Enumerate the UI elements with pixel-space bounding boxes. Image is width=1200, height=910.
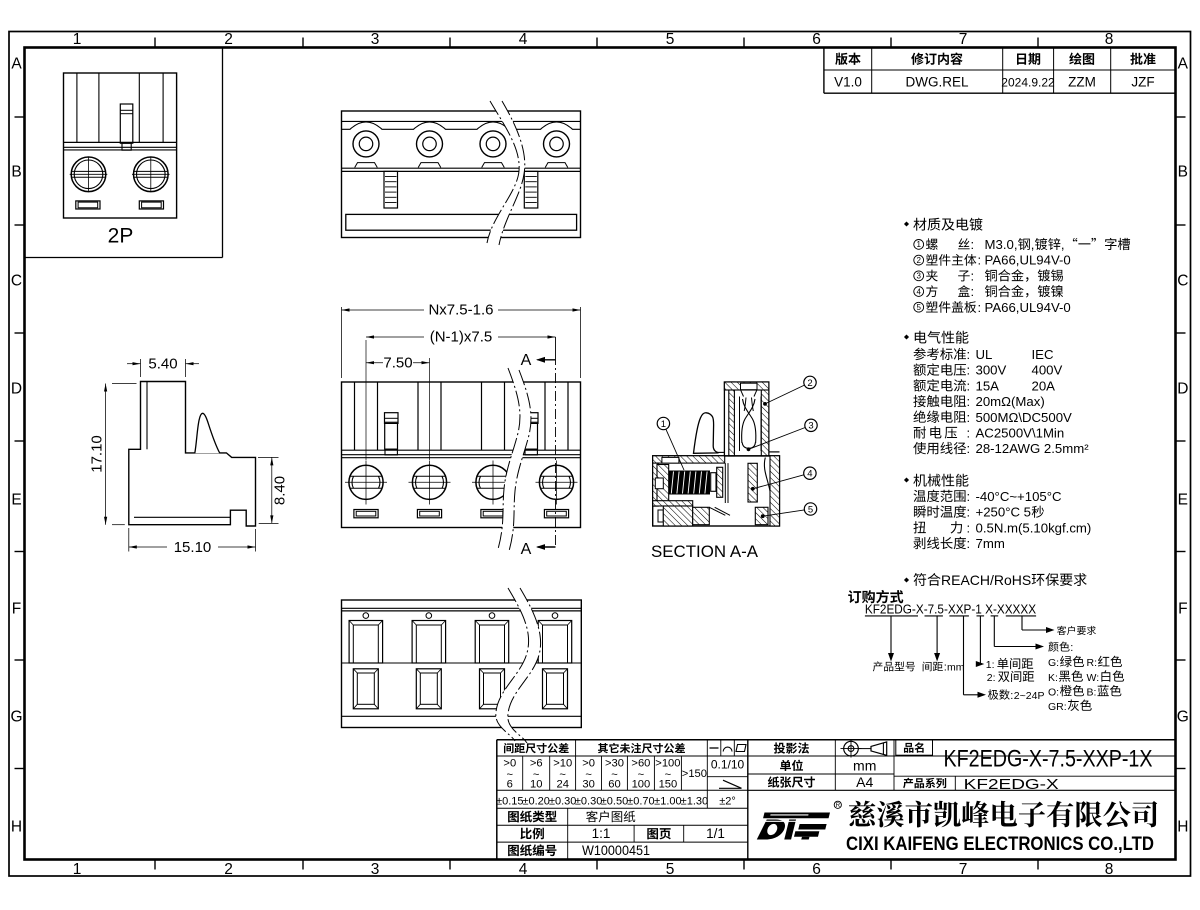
svg-text:2~24P: 2~24P	[1014, 690, 1045, 702]
svg-text:>0: >0	[503, 757, 516, 769]
svg-text:+250°C 5: +250°C 5	[976, 505, 1032, 520]
svg-text::: :	[967, 410, 971, 425]
svg-text:60: 60	[608, 779, 620, 791]
svg-text:5: 5	[808, 504, 813, 515]
svg-text:7: 7	[959, 861, 968, 878]
svg-text:>60: >60	[631, 757, 650, 769]
svg-text:C: C	[11, 273, 22, 290]
svg-text:W:: W:	[1087, 672, 1100, 684]
svg-text:7mm: 7mm	[976, 536, 1005, 551]
svg-text:0.5N.m(5.10kgf.cm): 0.5N.m(5.10kgf.cm)	[976, 520, 1092, 535]
svg-text:0.1/10: 0.1/10	[711, 757, 745, 771]
svg-text:B: B	[11, 164, 21, 181]
svg-text:±0.70: ±0.70	[627, 795, 654, 807]
svg-text:Nx7.5-1.6: Nx7.5-1.6	[428, 302, 493, 319]
svg-text:3: 3	[371, 861, 380, 878]
svg-text:>6: >6	[530, 757, 543, 769]
svg-text:4: 4	[916, 287, 921, 296]
svg-text:mm: mm	[853, 757, 876, 773]
svg-text:8: 8	[1105, 31, 1114, 48]
svg-text:CIXI KAIFENG ELECTRONICS CO.,L: CIXI KAIFENG ELECTRONICS CO.,LTD	[846, 833, 1154, 855]
svg-text:1:1: 1:1	[592, 826, 611, 841]
svg-text:1:: 1:	[986, 659, 995, 671]
svg-text:>30: >30	[605, 757, 624, 769]
svg-text::: :	[967, 536, 971, 551]
svg-text:2: 2	[224, 31, 233, 48]
svg-text:M3.0,: M3.0,	[985, 237, 1018, 252]
svg-text:8: 8	[1105, 861, 1114, 878]
svg-text:5: 5	[666, 31, 675, 48]
svg-text:UL: UL	[976, 347, 993, 362]
svg-text:30: 30	[582, 779, 594, 791]
svg-text:100: 100	[632, 779, 651, 791]
svg-text::: :	[967, 363, 971, 378]
svg-text:E: E	[1178, 492, 1188, 509]
svg-text:F: F	[1178, 601, 1187, 618]
svg-text:mm: mm	[947, 662, 965, 674]
svg-text:2: 2	[224, 861, 233, 878]
svg-text:PA66,UL94V-0: PA66,UL94V-0	[985, 300, 1071, 315]
svg-text:KF2EDG-X-7.5-XXP-1X: KF2EDG-X-7.5-XXP-1X	[944, 745, 1153, 772]
svg-text:6: 6	[812, 31, 821, 48]
svg-text:REACH/RoHS: REACH/RoHS	[941, 572, 1031, 588]
svg-text:±0.30: ±0.30	[549, 795, 576, 807]
svg-text:±0.15: ±0.15	[496, 795, 523, 807]
svg-text:A: A	[521, 541, 532, 558]
svg-text:±1.30: ±1.30	[681, 795, 708, 807]
svg-text:8.40: 8.40	[272, 476, 289, 505]
svg-text:20mΩ(Max): 20mΩ(Max)	[976, 394, 1045, 409]
svg-text:,: ,	[1061, 237, 1065, 252]
svg-text:JZF: JZF	[1131, 74, 1154, 89]
svg-text:28-12AWG 2.5mm²: 28-12AWG 2.5mm²	[976, 441, 1090, 456]
svg-text:>0: >0	[582, 757, 595, 769]
svg-text:300V: 300V	[976, 363, 1007, 378]
svg-text:6: 6	[507, 779, 513, 791]
svg-text:10: 10	[530, 779, 542, 791]
svg-text:H: H	[11, 819, 22, 836]
svg-text:K:: K:	[1048, 672, 1058, 684]
svg-text:,: ,	[1031, 237, 1035, 252]
svg-text:DWG.REL: DWG.REL	[905, 74, 968, 89]
svg-text:17.10: 17.10	[89, 435, 106, 473]
svg-text:A: A	[1178, 56, 1189, 73]
svg-text:>10: >10	[553, 757, 572, 769]
svg-text:W10000451: W10000451	[582, 842, 650, 858]
svg-text:-40°C~+105°C: -40°C~+105°C	[976, 489, 1063, 504]
svg-text:IEC: IEC	[1032, 347, 1054, 362]
svg-text:G:: G:	[1048, 657, 1059, 669]
svg-text:±0.20: ±0.20	[522, 795, 549, 807]
svg-text:AC2500V\1Min: AC2500V\1Min	[976, 426, 1065, 441]
svg-text::: :	[1070, 642, 1073, 654]
svg-text::: :	[978, 253, 982, 268]
svg-text::: :	[978, 300, 982, 315]
svg-text:KF2EDG-X: KF2EDG-X	[964, 777, 1059, 793]
svg-text::: :	[967, 505, 971, 520]
svg-text:±0.30: ±0.30	[575, 795, 602, 807]
svg-text:R:: R:	[1087, 657, 1098, 669]
svg-text:±2°: ±2°	[719, 795, 736, 807]
svg-text::: :	[967, 378, 971, 393]
svg-text:5: 5	[666, 861, 675, 878]
svg-text:1: 1	[73, 861, 82, 878]
svg-text:15.10: 15.10	[174, 539, 212, 556]
svg-text:24: 24	[556, 779, 568, 791]
svg-text:20A: 20A	[1032, 378, 1056, 393]
svg-text:GR:: GR:	[1048, 701, 1067, 713]
svg-text:G: G	[10, 709, 22, 726]
svg-text:1/1: 1/1	[706, 826, 725, 841]
svg-text::: :	[967, 441, 971, 456]
svg-text:>150: >150	[682, 768, 707, 780]
svg-text:ZZM: ZZM	[1068, 74, 1096, 89]
svg-text:7.50: 7.50	[383, 354, 412, 371]
svg-text::: :	[971, 284, 975, 299]
svg-text::: :	[967, 426, 971, 441]
svg-text:D: D	[1177, 381, 1188, 398]
svg-text:3: 3	[808, 421, 813, 432]
svg-text:1: 1	[73, 31, 82, 48]
svg-text:2: 2	[807, 378, 812, 389]
svg-text:E: E	[11, 492, 21, 509]
svg-text:3: 3	[371, 31, 380, 48]
svg-text:4: 4	[519, 861, 528, 878]
svg-text:B: B	[1178, 164, 1188, 181]
svg-text:>100: >100	[655, 757, 680, 769]
svg-text::: :	[967, 489, 971, 504]
svg-text:4: 4	[807, 469, 812, 480]
svg-text::: :	[967, 394, 971, 409]
svg-text:G: G	[1177, 709, 1189, 726]
svg-text::: :	[967, 347, 971, 362]
svg-text:KF2EDG-X-7.5-XXP-1 X-XXXXX: KF2EDG-X-7.5-XXP-1 X-XXXXX	[865, 602, 1037, 616]
svg-text:2: 2	[916, 256, 921, 265]
svg-text:R: R	[836, 802, 841, 809]
svg-text:2P: 2P	[108, 225, 134, 248]
svg-text:±1.00: ±1.00	[654, 795, 681, 807]
svg-text::: :	[971, 237, 975, 252]
svg-text:V1.0: V1.0	[834, 74, 862, 89]
svg-text:5.40: 5.40	[148, 356, 177, 373]
svg-text:D: D	[11, 381, 22, 398]
svg-text:1: 1	[661, 419, 666, 430]
svg-text:PA66,UL94V-0: PA66,UL94V-0	[985, 253, 1071, 268]
svg-text:A4: A4	[856, 774, 873, 790]
svg-text:15A: 15A	[976, 378, 1000, 393]
svg-text:150: 150	[659, 779, 678, 791]
svg-text:5: 5	[916, 303, 921, 312]
svg-text:3: 3	[916, 272, 921, 281]
svg-text:O:: O:	[1048, 686, 1059, 698]
svg-text:500MΩ\DC500V: 500MΩ\DC500V	[976, 410, 1073, 425]
svg-text:±0.50: ±0.50	[601, 795, 628, 807]
svg-text::: :	[967, 520, 971, 535]
svg-text:1: 1	[916, 240, 921, 249]
svg-text:A: A	[521, 352, 532, 369]
svg-text:(N-1)x7.5: (N-1)x7.5	[430, 329, 493, 346]
svg-text:SECTION A-A: SECTION A-A	[651, 543, 758, 561]
svg-text:H: H	[1177, 819, 1188, 836]
svg-text:6: 6	[812, 861, 821, 878]
svg-text:2:: 2:	[987, 672, 996, 684]
svg-text:400V: 400V	[1032, 363, 1063, 378]
svg-text::: :	[971, 268, 975, 283]
svg-text:2024.9.22: 2024.9.22	[1001, 75, 1055, 89]
svg-text:C: C	[1177, 273, 1188, 290]
svg-text:4: 4	[519, 31, 528, 48]
svg-text:B:: B:	[1087, 686, 1097, 698]
svg-text:F: F	[12, 601, 21, 618]
svg-text:7: 7	[959, 31, 968, 48]
svg-text:A: A	[11, 56, 22, 73]
